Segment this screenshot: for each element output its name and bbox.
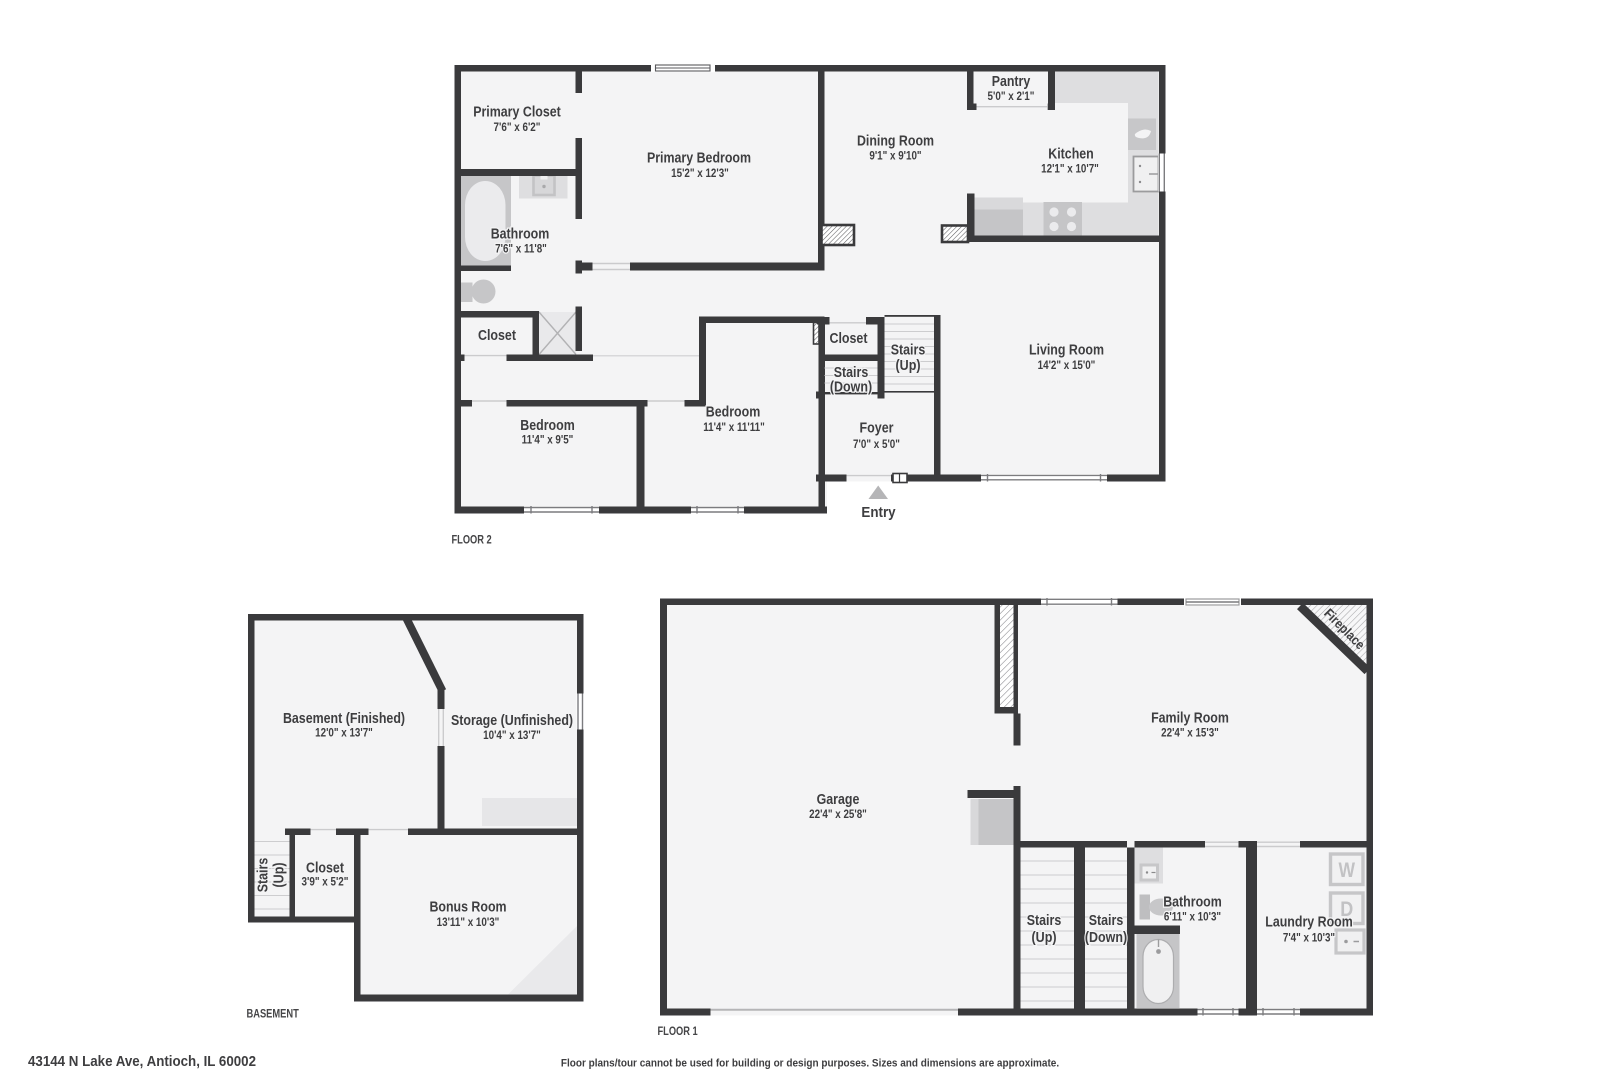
svg-text:(Down): (Down) [1085,930,1127,946]
svg-text:7'0" x 5'0": 7'0" x 5'0" [853,439,900,451]
svg-text:14'2" x 15'0": 14'2" x 15'0" [1038,360,1096,372]
svg-text:12'0" x 13'7": 12'0" x 13'7" [315,728,373,740]
svg-text:Floor plans/tour cannot be use: Floor plans/tour cannot be used for buil… [561,1058,1059,1070]
svg-text:43144 N Lake Ave, Antioch, IL: 43144 N Lake Ave, Antioch, IL 60002 [28,1053,256,1070]
svg-text:FLOOR 2: FLOOR 2 [452,535,492,547]
svg-text:Stairs: Stairs [1027,913,1062,929]
svg-text:7'6" x 11'8": 7'6" x 11'8" [495,244,547,256]
svg-text:3'9" x 5'2": 3'9" x 5'2" [302,877,349,889]
svg-text:Closet: Closet [306,861,344,877]
svg-text:Entry: Entry [861,504,896,521]
svg-text:22'4" x 15'3": 22'4" x 15'3" [1161,728,1219,740]
svg-text:Pantry: Pantry [992,74,1031,90]
svg-text:6'11" x 10'3": 6'11" x 10'3" [1164,912,1221,924]
svg-text:Laundry Room: Laundry Room [1265,915,1353,931]
svg-text:Closet: Closet [830,331,868,347]
svg-text:Basement (Finished): Basement (Finished) [283,711,405,727]
svg-text:5'0" x 2'1": 5'0" x 2'1" [988,91,1035,103]
svg-text:Kitchen: Kitchen [1048,147,1094,163]
svg-text:12'1" x 10'7": 12'1" x 10'7" [1041,164,1099,176]
svg-text:Stairs: Stairs [256,858,272,893]
svg-text:15'2" x 12'3": 15'2" x 12'3" [671,168,729,180]
svg-text:Bonus Room: Bonus Room [429,900,506,916]
svg-text:Garage: Garage [817,792,860,808]
svg-text:Foyer: Foyer [860,421,894,437]
svg-text:BASEMENT: BASEMENT [247,1009,299,1021]
svg-text:(Up): (Up) [272,862,288,887]
svg-text:13'11" x 10'3": 13'11" x 10'3" [437,917,500,929]
svg-text:Living Room: Living Room [1029,343,1104,359]
svg-text:FLOOR 1: FLOOR 1 [658,1026,699,1038]
svg-text:Family Room: Family Room [1151,711,1229,727]
svg-text:Stairs: Stairs [891,343,926,359]
svg-text:Stairs: Stairs [1089,913,1124,929]
svg-text:Bathroom: Bathroom [491,227,550,243]
svg-text:Dining Room: Dining Room [857,134,934,150]
svg-text:(Up): (Up) [1032,930,1057,946]
svg-text:W: W [1339,859,1356,882]
svg-text:11'4" x 9'5": 11'4" x 9'5" [522,435,574,447]
svg-text:(Up): (Up) [896,358,921,374]
svg-text:Bedroom: Bedroom [520,418,575,434]
svg-text:Bedroom: Bedroom [706,405,761,421]
svg-text:7'6" x 6'2": 7'6" x 6'2" [494,122,541,134]
svg-text:11'4" x 11'11": 11'4" x 11'11" [703,422,765,434]
svg-text:22'4" x 25'8": 22'4" x 25'8" [809,809,867,821]
svg-text:9'1" x 9'10": 9'1" x 9'10" [869,151,921,163]
svg-text:10'4" x 13'7": 10'4" x 13'7" [483,730,541,742]
svg-text:Storage (Unfinished): Storage (Unfinished) [451,713,573,729]
svg-text:Bathroom: Bathroom [1163,895,1222,911]
svg-text:Primary Bedroom: Primary Bedroom [647,151,751,167]
svg-text:7'4" x 10'3": 7'4" x 10'3" [1283,933,1335,945]
svg-text:(Down): (Down) [830,380,872,396]
svg-text:Primary Closet: Primary Closet [473,105,561,121]
svg-text:Closet: Closet [478,328,516,344]
